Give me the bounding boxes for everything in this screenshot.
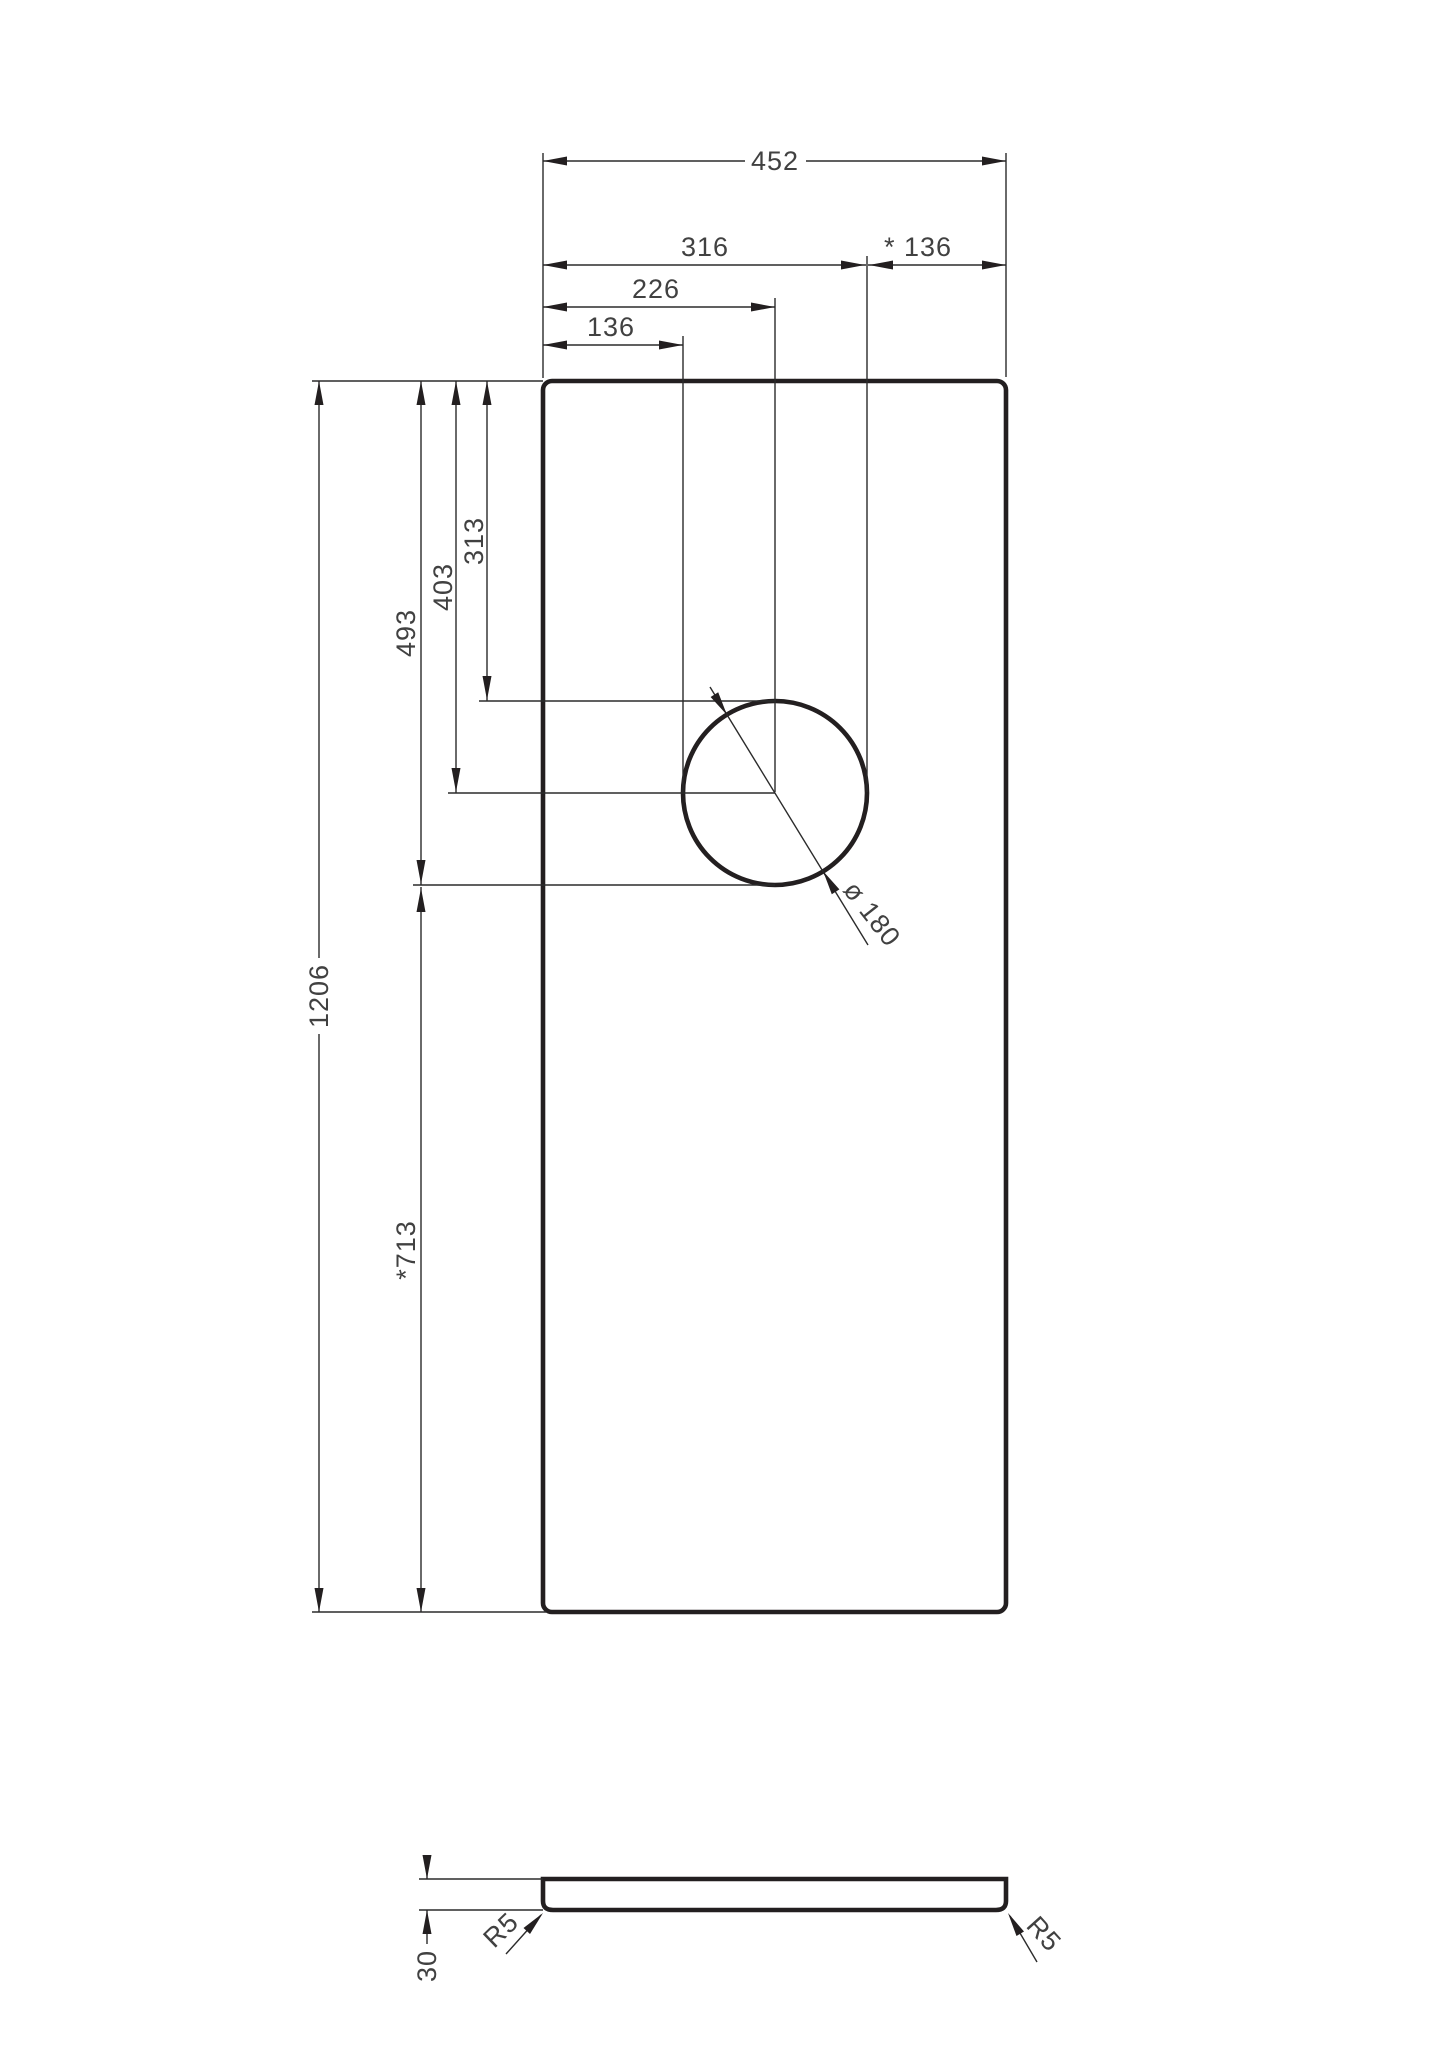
dim-top-to-hole-bottom: 493: [391, 381, 426, 885]
arrow-up-icon: [483, 381, 492, 405]
arrow-left-icon: [543, 261, 567, 270]
arrow-right-icon: [659, 341, 683, 350]
slab-profile-outline: [543, 1879, 1006, 1910]
dim-label-226: 226: [632, 274, 680, 304]
dim-label-r5-right: R5: [1021, 1910, 1068, 1957]
arrow-diagonal-lower-icon: [823, 871, 839, 894]
dim-label-313: 313: [459, 517, 489, 565]
arrow-up-icon: [417, 381, 426, 405]
leader-line: [710, 687, 868, 945]
arrow-up-icon: [315, 381, 324, 405]
dim-hole-bottom-to-panel-bottom: *713: [391, 887, 426, 1612]
dim-overall-width: 452: [543, 146, 1006, 176]
arrow-right-icon: [982, 157, 1006, 166]
drawing-page: 452 316 * 136 226 136: [0, 0, 1456, 2048]
dim-overall-length: 1206: [304, 381, 334, 1612]
arrow-down-icon: [315, 1588, 324, 1612]
arrow-down-icon: [417, 860, 426, 884]
arrow-down-icon: [483, 676, 492, 700]
dim-label-star-136: * 136: [884, 232, 952, 262]
arrow-right-icon: [751, 303, 775, 312]
dim-label-493: 493: [391, 609, 421, 657]
extension-lines: [312, 153, 1006, 1612]
arrow-left-icon: [543, 303, 567, 312]
arrow-down-icon: [452, 768, 461, 792]
dim-label-diameter-180: ø 180: [837, 876, 906, 953]
dim-label-316: 316: [681, 232, 729, 262]
arrow-diagonal-upper-icon: [711, 692, 727, 715]
arrow-up-icon: [452, 381, 461, 405]
arrow-left-icon: [543, 341, 567, 350]
dim-label-star-713: *713: [391, 1220, 421, 1280]
dim-left-to-hole-right: 316: [543, 232, 866, 270]
dim-label-136: 136: [587, 312, 635, 342]
dim-top-to-hole-top: 313: [459, 381, 492, 701]
dim-hole-right-to-edge: * 136: [868, 232, 1006, 270]
section-extension-lines: [419, 1879, 543, 1910]
arrow-down-icon: [417, 1588, 426, 1612]
arrow-up-left-icon: [1008, 1913, 1024, 1936]
dim-label-r5-left: R5: [477, 1907, 524, 1954]
dim-thickness: 30: [412, 1855, 442, 1982]
arrow-down-icon: [423, 1855, 432, 1879]
dim-label-403: 403: [428, 563, 458, 611]
dim-radius-left: R5: [477, 1907, 543, 1954]
plan-view: 452 316 * 136 226 136: [304, 146, 1006, 1612]
dim-left-to-hole-left: 136: [543, 312, 683, 350]
section-view: 30 R5 R5: [412, 1855, 1067, 1982]
dim-label-1206: 1206: [304, 964, 334, 1028]
arrow-up-icon: [417, 888, 426, 912]
arrow-right-icon: [982, 261, 1006, 270]
dim-label-30: 30: [412, 1950, 442, 1982]
dim-label-452: 452: [751, 146, 799, 176]
arrow-left-icon: [543, 157, 567, 166]
dim-top-to-hole-center: 403: [428, 381, 461, 793]
dim-left-to-hole-center: 226: [543, 274, 775, 312]
dim-radius-right: R5: [1008, 1910, 1067, 1962]
arrow-up-icon: [423, 1910, 432, 1934]
technical-drawing-canvas: 452 316 * 136 226 136: [0, 0, 1456, 2048]
arrow-right-icon: [841, 261, 865, 270]
dim-hole-diameter: ø 180: [710, 687, 907, 952]
